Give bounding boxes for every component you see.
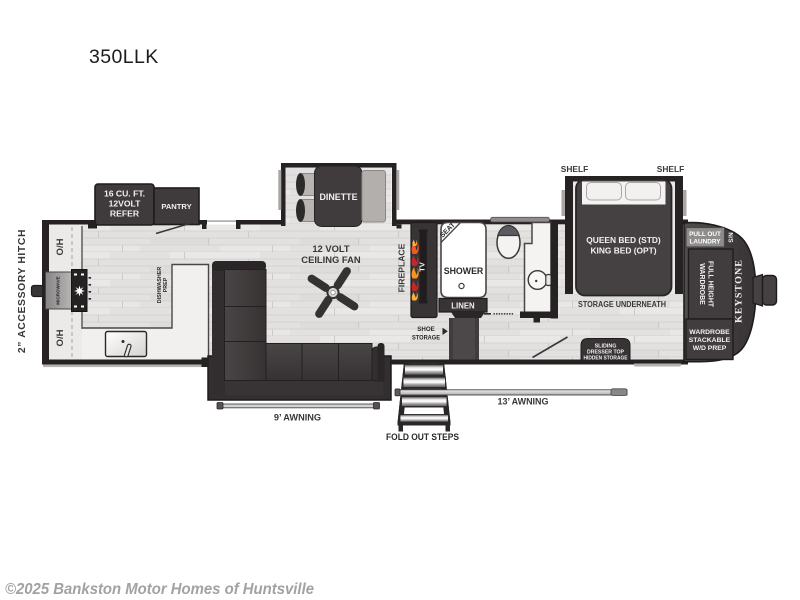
svg-text:SHOE: SHOE — [417, 326, 435, 333]
svg-text:KEYSTONE: KEYSTONE — [734, 259, 745, 323]
svg-text:2” ACCESSORY HITCH: 2” ACCESSORY HITCH — [17, 229, 28, 353]
svg-text:©2025 Bankston Motor Homes of: ©2025 Bankston Motor Homes of Huntsville — [5, 581, 314, 598]
svg-text:KING BED (OPT): KING BED (OPT) — [590, 246, 656, 256]
svg-text:MICROWAVE: MICROWAVE — [56, 276, 61, 305]
svg-text:WARDROBE: WARDROBE — [689, 329, 730, 336]
svg-text:STORAGE UNDERNEATH: STORAGE UNDERNEATH — [578, 299, 666, 309]
svg-text:DINETTE: DINETTE — [320, 192, 359, 203]
svg-text:CEILING FAN: CEILING FAN — [301, 254, 361, 265]
svg-text:O/H: O/H — [55, 329, 66, 346]
svg-text:PULL OUT: PULL OUT — [689, 231, 721, 238]
svg-text:TV: TV — [418, 261, 427, 272]
svg-text:13’ AWNING: 13’ AWNING — [498, 397, 549, 407]
svg-text:350LLK: 350LLK — [89, 46, 159, 68]
svg-text:12 VOLT: 12 VOLT — [312, 243, 350, 254]
svg-text:N/S: N/S — [727, 232, 734, 242]
svg-text:16 CU. FT.: 16 CU. FT. — [104, 189, 145, 199]
svg-text:9’ AWNING: 9’ AWNING — [274, 413, 321, 423]
svg-text:QUEEN BED (STD): QUEEN BED (STD) — [586, 235, 661, 245]
svg-text:SHOWER: SHOWER — [444, 266, 484, 276]
svg-text:FOLD OUT STEPS: FOLD OUT STEPS — [386, 431, 459, 442]
svg-text:STACKABLE: STACKABLE — [689, 337, 731, 344]
svg-text:LAUNDRY: LAUNDRY — [689, 239, 721, 246]
svg-text:O/H: O/H — [55, 238, 66, 255]
svg-text:REFER: REFER — [110, 209, 140, 219]
svg-text:STORAGE: STORAGE — [412, 335, 440, 342]
svg-text:FIREPLACE: FIREPLACE — [397, 243, 407, 292]
svg-text:LINEN: LINEN — [451, 302, 475, 311]
svg-text:SHELF: SHELF — [657, 164, 684, 174]
svg-text:12VOLT: 12VOLT — [109, 199, 142, 209]
svg-text:PANTRY: PANTRY — [161, 202, 191, 211]
svg-text:SHELF: SHELF — [561, 164, 588, 174]
svg-text:W/D PREP: W/D PREP — [693, 345, 727, 352]
svg-text:FULL HEIGHTWARDROBE: FULL HEIGHTWARDROBE — [698, 261, 714, 308]
